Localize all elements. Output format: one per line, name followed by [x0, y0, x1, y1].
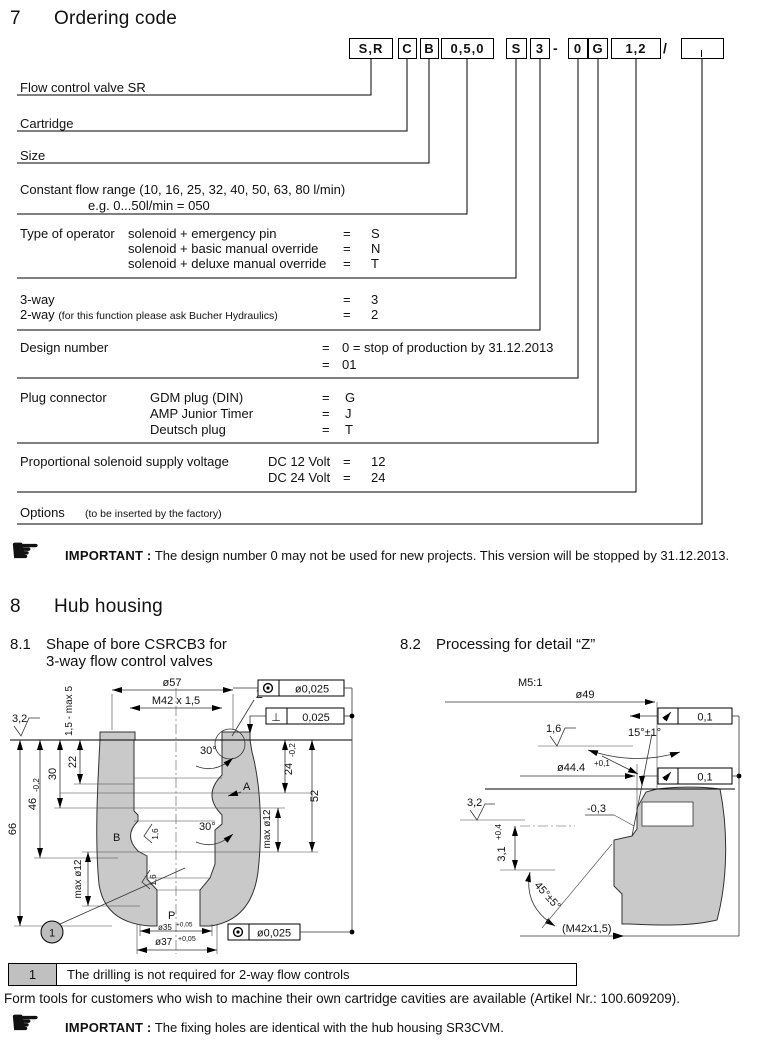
row-supply-voltage: Proportional solenoid supply voltage [20, 454, 229, 469]
code-box-s: S [506, 38, 527, 59]
important-2-text: The fixing holes are identical with the … [155, 1020, 504, 1035]
code-box-12: 1,2 [611, 38, 661, 59]
chamfer-leader [542, 844, 612, 928]
section-81-heading: 8.1Shape of bore CSRCB3 for 3-way flow c… [10, 636, 227, 670]
angle15-label: 15°±1° [628, 727, 661, 739]
balloon-1-label: 1 [49, 928, 55, 940]
dim46-label: 46 [27, 798, 39, 810]
minus03-label: -0,3 [587, 803, 606, 815]
dia444-tolerance: +0,1 [594, 759, 610, 768]
eq-sign: = [322, 422, 330, 437]
drawing-bore-csrcb3: ø57 M42 x 1,5 Z ø0,025 ⊥ 0,025 1 [0, 674, 395, 962]
max-dia12-right-label: max ø12 [262, 809, 273, 848]
plug-code-1: G [345, 390, 355, 405]
plug-option-1: GDM plug (DIN) [150, 390, 243, 405]
detail-z-leader [232, 700, 254, 736]
row-flow-control-valve: Flow control valve SR [20, 80, 146, 95]
code-box-0: 0 [568, 38, 588, 59]
left-wall-section [97, 740, 157, 926]
runout-2-value: 0,1 [697, 772, 712, 784]
code-2way: 2 [371, 307, 378, 322]
angle30-bottom-label: 30° [199, 821, 216, 833]
angle15-arc [588, 750, 680, 759]
perpendicularity-frame: ⊥ 0,025 [250, 708, 352, 734]
eq-sign: = [343, 226, 351, 241]
concentricity-frame-top: ø0,025 [233, 680, 352, 696]
dia35-label: ø35 [158, 923, 172, 932]
counterbore-groove [642, 802, 693, 826]
code-separator-dash: - [553, 40, 558, 56]
design-number-0: 0 = stop of production by 31.12.2013 [342, 340, 553, 355]
section-81-title-line2: 3-way flow control valves [46, 653, 213, 670]
voltage-code-2: 24 [371, 470, 385, 485]
tol-bottom-value: ø0,025 [257, 928, 291, 940]
row-2way-note: (for this function please ask Bucher Hyd… [58, 310, 277, 322]
dia35-tolerance: +0,05 [176, 922, 193, 929]
concentricity-icon-dot [236, 930, 239, 933]
row-flow-range: Constant flow range (10, 16, 25, 32, 40,… [20, 182, 345, 197]
row-2way: 2-way (for this function please ask Buch… [20, 307, 278, 322]
datum-dot-top [350, 714, 355, 719]
operator-option-2: solenoid + basic manual override [128, 241, 318, 256]
runout-frame-2: 0,1 [642, 768, 739, 786]
form-tools-paragraph: Form tools for customers who wish to mac… [4, 991, 680, 1006]
port-a-label: A [243, 781, 251, 793]
voltage-option-1: DC 12 Volt [268, 454, 330, 469]
right-dimensions: 24 -0,2 52 max ø12 [262, 740, 321, 852]
concentricity-frame-bottom: ø0,025 [228, 924, 352, 940]
runout-frame-1: 0,1 [630, 708, 739, 724]
drawing-note-table: 1 The drilling is not required for 2-way… [8, 963, 577, 986]
dim31-tolerance: +0,4 [494, 824, 503, 840]
voltage-code-1: 12 [371, 454, 385, 469]
eq-sign: = [343, 307, 351, 322]
operator-code-3: T [371, 256, 379, 271]
voltage-option-2: DC 24 Volt [268, 470, 330, 485]
max-dia12-left-label: max ø12 [73, 859, 84, 898]
code-box-g: G [588, 38, 608, 59]
row-flow-range-example: e.g. 0...50l/min = 050 [88, 198, 210, 213]
row-options: Options [20, 505, 65, 520]
dia37-label: ø37 [155, 937, 173, 948]
thread-depth-label: 1,5 - max 5 [64, 686, 75, 736]
row-plug-connector: Plug connector [20, 390, 107, 405]
perpendicularity-icon: ⊥ [271, 712, 281, 724]
plug-option-2: AMP Junior Timer [150, 406, 253, 421]
important-note-1: IMPORTANT : The design number 0 may not … [65, 548, 729, 563]
row-options-note: (to be inserted by the factory) [85, 508, 222, 520]
eq-sign: = [343, 292, 351, 307]
concentricity-icon-dot [266, 686, 269, 689]
section-8-title: Hub housing [54, 596, 163, 617]
operator-option-3: solenoid + deluxe manual override [128, 256, 326, 271]
row-2way-text: 2-way [20, 307, 55, 322]
roughness-16a-label: 1,6 [151, 828, 160, 840]
eq-sign: = [322, 357, 330, 372]
left-wall-stub [100, 732, 135, 740]
row-size: Size [20, 148, 45, 163]
section-82-heading: 8.2Processing for detail “Z” [400, 636, 595, 653]
dia57-label: ø57 [163, 677, 182, 689]
minus03-leader [614, 815, 634, 826]
roughness-16-label: 1,6 [546, 723, 561, 735]
angle30-top-label: 30° [200, 745, 217, 757]
eq-sign: = [343, 256, 351, 271]
pointing-hand-icon: ☛ [10, 536, 40, 566]
code-separator-slash: / [663, 40, 667, 56]
port-b-label: B [113, 832, 120, 844]
code-box-sr: S,R [349, 38, 393, 59]
dim52-label: 52 [309, 790, 321, 802]
code-box-050: 0,5,0 [441, 38, 494, 59]
dim66-label: 66 [7, 823, 19, 835]
thread-label: M42 x 1,5 [152, 695, 200, 707]
eq-sign: = [322, 390, 330, 405]
operator-option-1: solenoid + emergency pin [128, 226, 277, 241]
right-wall-section [200, 740, 260, 926]
angle45-label: 45°±5° [532, 880, 563, 913]
dia49-label: ø49 [576, 689, 595, 701]
dim22-label: 22 [67, 756, 79, 768]
plug-code-2: J [345, 406, 352, 421]
row-operator-label: Type of operator [20, 226, 115, 241]
eq-sign: = [343, 241, 351, 256]
plug-option-3: Deutsch plug [150, 422, 226, 437]
tol-top-value: ø0,025 [295, 684, 329, 696]
dim31-label: 3,1 [496, 846, 508, 861]
port-p-label: P [168, 910, 175, 922]
section-82-title: Processing for detail “Z” [436, 636, 595, 653]
operator-code-2: N [371, 241, 380, 256]
thread-ref-arrow [613, 933, 624, 940]
note-text-cell: The drilling is not required for 2-way f… [57, 964, 350, 985]
dim24-label: 24 [283, 763, 295, 775]
important-1-text: The design number 0 may not be used for … [155, 548, 729, 563]
right-wall-stub [222, 732, 250, 740]
dia37-tolerance: +0,05 [178, 936, 196, 943]
section-8-heading: 8Hub housing [10, 596, 163, 618]
eq-sign: = [322, 340, 330, 355]
important-2-label: IMPORTANT : [65, 1020, 151, 1035]
dia444-label: ø44.4 [557, 762, 585, 774]
design-number-01: 01 [342, 357, 356, 372]
operator-code-1: S [371, 226, 380, 241]
thread-ref-label: (M42x1,5) [562, 923, 612, 935]
section-82-number: 8.2 [400, 636, 436, 653]
dim24-tolerance: -0,2 [288, 743, 297, 757]
empty-box-tick [701, 50, 702, 57]
roughness-32-label: 3,2 [12, 713, 27, 725]
runout-1-value: 0,1 [697, 712, 712, 724]
important-1-label: IMPORTANT : [65, 548, 151, 563]
section-81-number: 8.1 [10, 636, 46, 653]
left-dimensions: 22 30 46 -0,2 66 max ø12 [7, 740, 88, 926]
drawing-detail-z: M5:1 ø49 0,1 1,6 15°±1° ø44 [390, 674, 773, 962]
code-3way: 3 [371, 292, 378, 307]
note-number-cell: 1 [9, 964, 57, 985]
datasheet-page: 7Ordering code S,R C B 0,5,0 S 3 - 0 G 1… [0, 0, 773, 1047]
tol-perp-value: 0,025 [302, 712, 330, 724]
important-note-2: IMPORTANT : The fixing holes are identic… [65, 1020, 504, 1035]
dim46-tolerance: -0,2 [32, 778, 41, 792]
section-81-title-line1: Shape of bore CSRCB3 for [46, 636, 227, 653]
section-8-number: 8 [10, 596, 54, 618]
row-design-number: Design number [20, 340, 108, 355]
pointing-hand-icon: ☛ [10, 1008, 40, 1038]
code-box-b: B [420, 38, 439, 59]
row-3way: 3-way [20, 292, 55, 307]
code-box-3: 3 [530, 38, 550, 59]
roughness-32-label: 3,2 [467, 797, 482, 809]
eq-sign: = [322, 406, 330, 421]
code-box-c: C [398, 38, 417, 59]
plug-code-3: T [345, 422, 353, 437]
row-cartridge: Cartridge [20, 116, 73, 131]
eq-sign: = [343, 470, 351, 485]
dim30-label: 30 [47, 768, 59, 780]
code-box-options-empty [681, 38, 724, 59]
eq-sign: = [343, 454, 351, 469]
scale-label: M5:1 [518, 677, 542, 689]
